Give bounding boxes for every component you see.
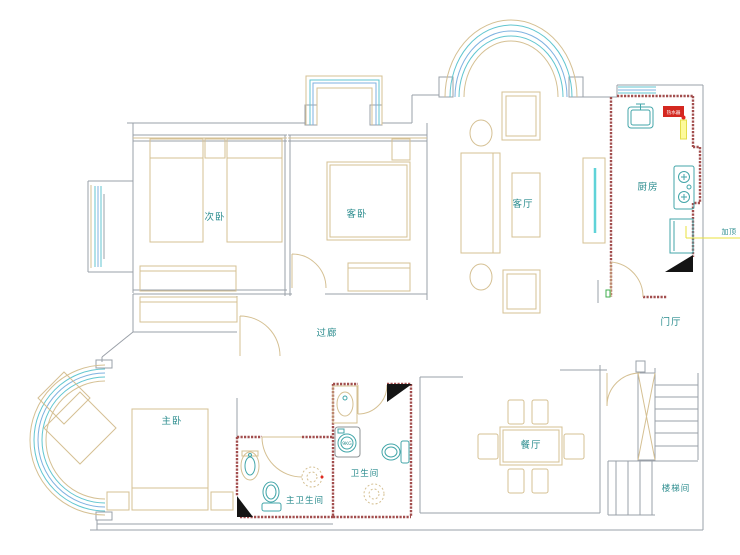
flue-column-bathroom bbox=[387, 384, 412, 402]
guest-bedroom-door-arc bbox=[292, 254, 326, 288]
door-hinge-mark bbox=[606, 290, 610, 297]
water-heater-label: 热水器 bbox=[667, 109, 681, 116]
partition-walls-red bbox=[237, 96, 700, 517]
flue-column-kitchen bbox=[665, 255, 693, 272]
master-bedroom-furniture bbox=[38, 372, 233, 510]
master-bathroom-door-arc bbox=[262, 437, 302, 477]
room-label-master-bedroom: 主卧 bbox=[161, 415, 182, 427]
water-heater-badge: 热水器 bbox=[663, 106, 684, 117]
room-label-kitchen: 厨房 bbox=[637, 181, 658, 193]
floor-plan-canvas: 热水器 bbox=[0, 0, 740, 555]
kitchen-fixtures: 热水器 bbox=[628, 104, 694, 253]
kitchen-door-arc bbox=[611, 262, 643, 297]
shower-symbol bbox=[302, 467, 322, 487]
drain-mark bbox=[321, 476, 324, 479]
flue-columns bbox=[237, 255, 693, 517]
door-arcs bbox=[240, 254, 643, 477]
chaise-lounge bbox=[44, 392, 116, 464]
room-label-dining-room: 餐厅 bbox=[520, 439, 541, 451]
gas-meter-icon bbox=[681, 116, 687, 140]
toilet-icon-bathroom bbox=[382, 441, 409, 463]
bathroom-fixtures: 9KG bbox=[241, 386, 409, 511]
floor-plan-page: 热水器 bbox=[0, 0, 740, 555]
kitchen-sink-icon bbox=[628, 104, 653, 128]
pedestal-sink-icon bbox=[241, 451, 259, 480]
room-labels: 次卧 客卧 客厅 厨房 门厅 过廊 主卧 餐厅 楼梯间 主卫生间 卫生间 加顶 bbox=[161, 181, 736, 506]
vanity-sink-icon bbox=[333, 386, 357, 423]
room-label-master-bathroom: 主卫生间 bbox=[286, 495, 324, 506]
gas-stove-icon bbox=[674, 166, 694, 209]
guest-bedroom-furniture bbox=[327, 139, 410, 291]
room-label-bathroom: 卫生间 bbox=[351, 468, 380, 479]
fridge-icon bbox=[670, 219, 693, 253]
room-label-stairwell: 楼梯间 bbox=[662, 483, 691, 494]
toilet-icon-master bbox=[262, 482, 281, 511]
outer-walls bbox=[88, 77, 703, 530]
room-label-guest-bedroom: 客卧 bbox=[346, 208, 367, 220]
shower-symbol-2 bbox=[364, 484, 384, 504]
entry-door-arc bbox=[607, 373, 640, 406]
flue-column-master-bath bbox=[237, 496, 253, 517]
room-label-corridor: 过廊 bbox=[316, 327, 337, 339]
secondary-bedroom-beds bbox=[150, 139, 282, 242]
room-label-living-room: 客厅 bbox=[512, 198, 533, 210]
master-suite-door-arc bbox=[240, 316, 280, 356]
room-label-entry-hall: 门厅 bbox=[660, 316, 681, 328]
room-label-secondary-bedroom: 次卧 bbox=[204, 211, 225, 223]
bathroom-door-arc bbox=[358, 385, 387, 414]
annotation-ceiling-note: 加顶 bbox=[722, 227, 737, 236]
washing-machine-icon: 9KG bbox=[335, 427, 360, 457]
washer-capacity-label: 9KG bbox=[342, 441, 352, 447]
